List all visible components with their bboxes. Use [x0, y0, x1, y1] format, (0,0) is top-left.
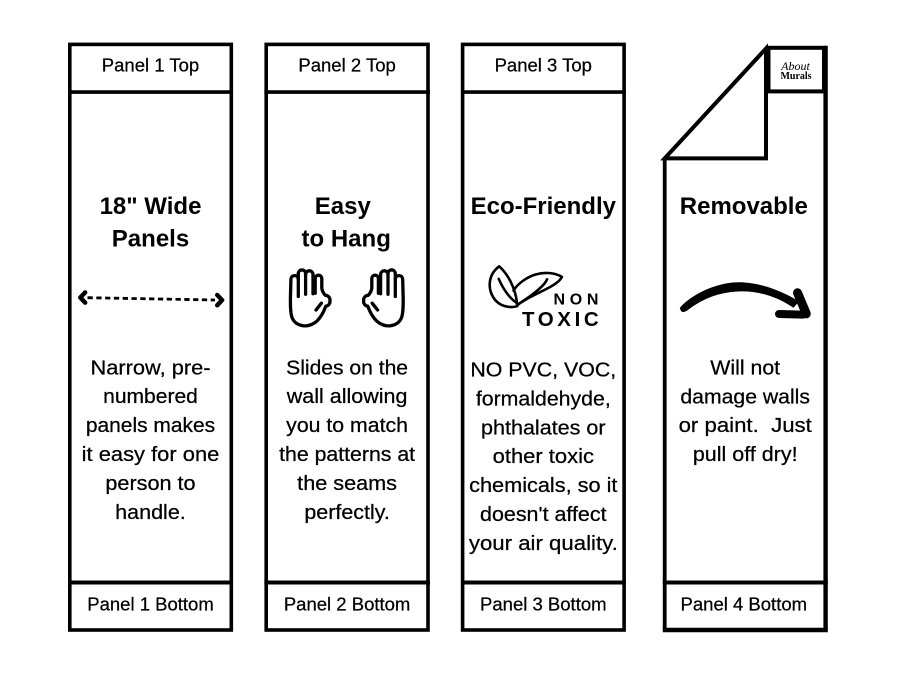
svg-text:panels makes: panels makes: [86, 415, 215, 437]
svg-text:chemicals, so it: chemicals, so it: [469, 475, 618, 497]
svg-text:damage walls: damage walls: [680, 386, 810, 408]
svg-text:doesn't affect: doesn't affect: [480, 504, 607, 526]
svg-text:Panel 4 Bottom: Panel 4 Bottom: [681, 594, 808, 615]
svg-text:Slides on the: Slides on the: [286, 357, 408, 379]
svg-text:the seams: the seams: [297, 473, 397, 495]
svg-text:Narrow, pre-: Narrow, pre-: [91, 357, 211, 379]
svg-text:NON: NON: [554, 292, 604, 309]
svg-text:other toxic: other toxic: [493, 446, 594, 468]
svg-text:Panel 1 Bottom: Panel 1 Bottom: [87, 594, 214, 615]
svg-text:the patterns at: the patterns at: [279, 444, 415, 466]
svg-text:handle.: handle.: [115, 502, 186, 524]
svg-text:Panel 3 Top: Panel 3 Top: [495, 55, 592, 76]
svg-text:Will not: Will not: [710, 357, 780, 379]
svg-text:Eco-Friendly: Eco-Friendly: [471, 193, 617, 220]
svg-text:your air quality.: your air quality.: [469, 533, 618, 555]
svg-text:Panel 2 Top: Panel 2 Top: [298, 55, 395, 76]
svg-text:you to match: you to match: [286, 415, 408, 437]
svg-text:to Hang: to Hang: [302, 226, 391, 253]
svg-text:18" Wide: 18" Wide: [100, 193, 202, 220]
svg-text:numbered: numbered: [103, 386, 198, 408]
svg-text:person to: person to: [105, 473, 195, 495]
svg-text:pull off dry!: pull off dry!: [693, 444, 798, 466]
svg-text:perfectly.: perfectly.: [304, 502, 390, 524]
svg-text:Panel 1 Top: Panel 1 Top: [102, 55, 199, 76]
svg-text:Easy: Easy: [315, 193, 372, 220]
svg-text:Murals: Murals: [780, 71, 811, 82]
svg-text:NO PVC, VOC,: NO PVC, VOC,: [470, 360, 616, 382]
svg-text:Panel 2 Bottom: Panel 2 Bottom: [284, 594, 411, 615]
svg-text:formaldehyde,: formaldehyde,: [476, 388, 611, 410]
svg-text:it easy for one: it easy for one: [82, 444, 220, 466]
svg-text:Removable: Removable: [680, 193, 808, 220]
svg-text:phthalates or: phthalates or: [481, 417, 606, 439]
svg-text:or paint. Just: or paint. Just: [679, 415, 813, 437]
svg-text:Panel 3 Bottom: Panel 3 Bottom: [480, 594, 607, 615]
svg-text:TOXIC: TOXIC: [522, 308, 602, 331]
svg-text:wall allowing: wall allowing: [286, 386, 408, 408]
svg-text:Panels: Panels: [112, 226, 189, 253]
